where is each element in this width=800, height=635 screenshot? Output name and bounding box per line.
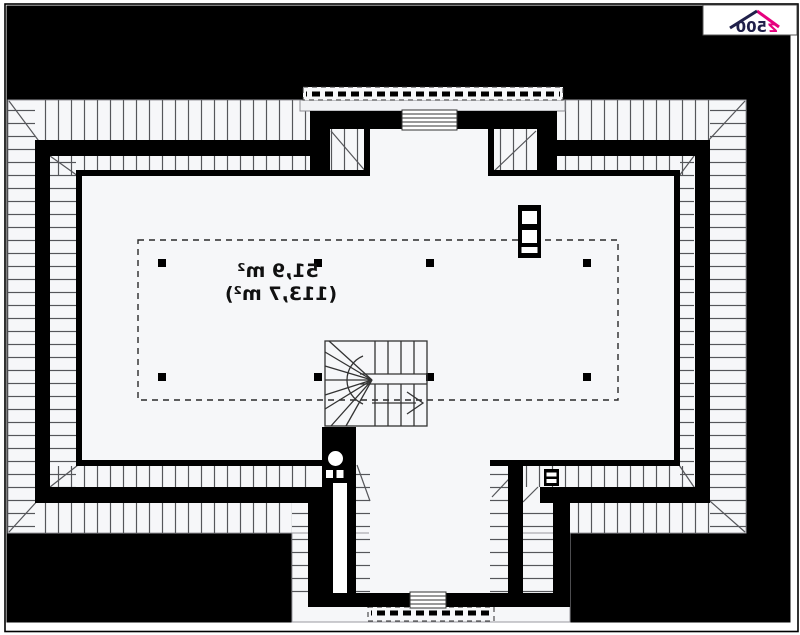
drawing-sheet: 51,9 m² (113,7 m²) z 500 [0,0,800,635]
dormer-right-wall [508,461,523,607]
bottom-balcony [368,607,494,621]
top-railing-balusters [306,91,560,97]
dormer-left-wall [308,487,324,607]
room-dormer-opening [369,466,508,593]
logo-text-num: 500 [736,18,767,36]
area-label-primary: 51,9 m² [237,260,319,282]
top-balcony-slab [300,100,565,111]
room-top-bump [369,129,489,176]
top-balcony [300,87,565,111]
bottom-window [410,592,446,608]
bottom-railing-balusters [371,611,491,617]
area-label-secondary: (113,7 m²) [225,283,337,305]
top-window [402,110,457,130]
floor-plan: 51,9 m² (113,7 m²) z 500 [0,0,800,635]
logo-text-z: z [768,18,778,36]
round-flue [328,451,343,466]
vent-block [544,469,559,486]
logo-box: z 500 [703,5,797,36]
